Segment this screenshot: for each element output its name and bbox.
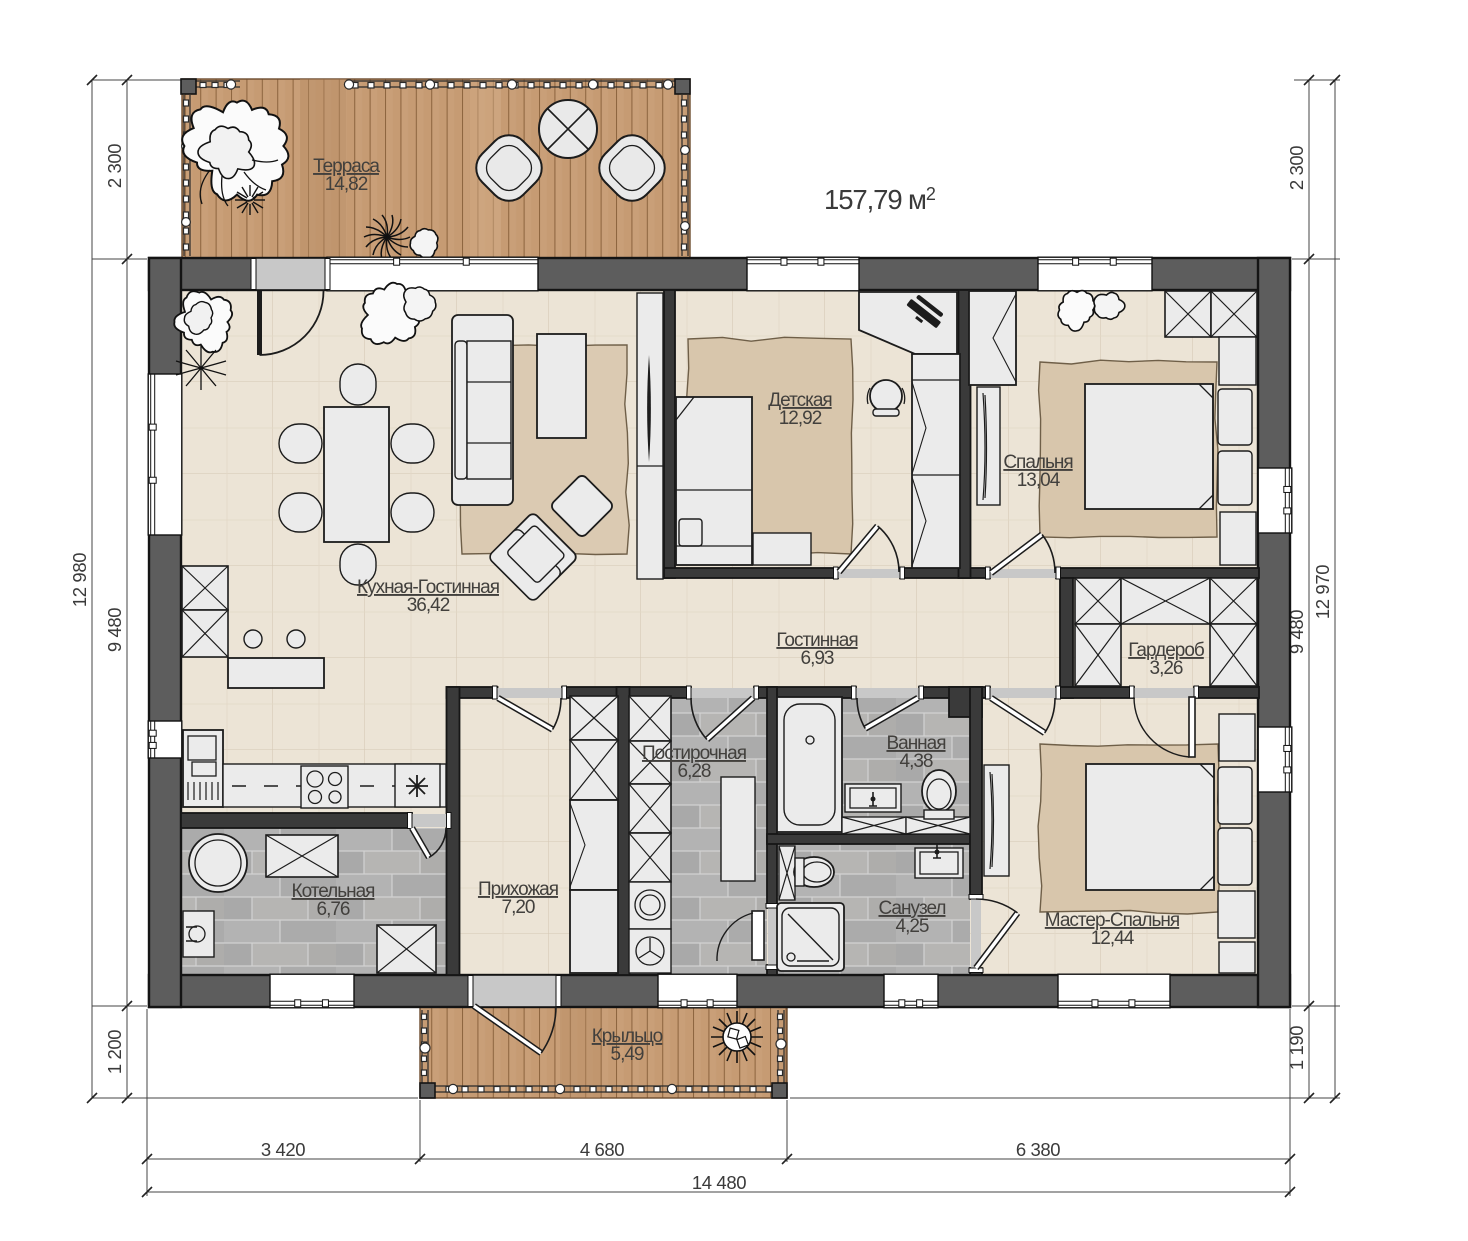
svg-text:6,28: 6,28: [678, 761, 711, 782]
svg-text:6 380: 6 380: [1016, 1139, 1060, 1160]
svg-text:13,04: 13,04: [1017, 470, 1061, 491]
svg-text:157,79 м2: 157,79 м2: [824, 184, 936, 215]
svg-text:2 300: 2 300: [1286, 146, 1307, 190]
svg-text:9 480: 9 480: [104, 608, 125, 652]
svg-text:1 190: 1 190: [1286, 1026, 1307, 1070]
svg-text:3 420: 3 420: [261, 1139, 305, 1160]
svg-text:4,25: 4,25: [896, 916, 929, 937]
svg-text:36,42: 36,42: [407, 595, 450, 616]
svg-text:2 300: 2 300: [104, 144, 125, 188]
svg-text:14,82: 14,82: [325, 174, 368, 195]
svg-text:12 970: 12 970: [1312, 565, 1333, 619]
svg-text:12,92: 12,92: [779, 408, 822, 429]
svg-text:7,20: 7,20: [502, 897, 535, 918]
svg-text:12,44: 12,44: [1091, 928, 1135, 949]
svg-text:1 200: 1 200: [104, 1030, 125, 1074]
svg-text:4 680: 4 680: [580, 1139, 624, 1160]
svg-text:3,26: 3,26: [1150, 658, 1183, 679]
svg-text:14 480: 14 480: [692, 1172, 746, 1193]
svg-text:5,49: 5,49: [611, 1044, 644, 1065]
svg-text:6,93: 6,93: [801, 648, 834, 669]
svg-text:6,76: 6,76: [317, 899, 350, 920]
svg-text:4,38: 4,38: [900, 751, 933, 772]
svg-text:12 980: 12 980: [69, 553, 90, 607]
